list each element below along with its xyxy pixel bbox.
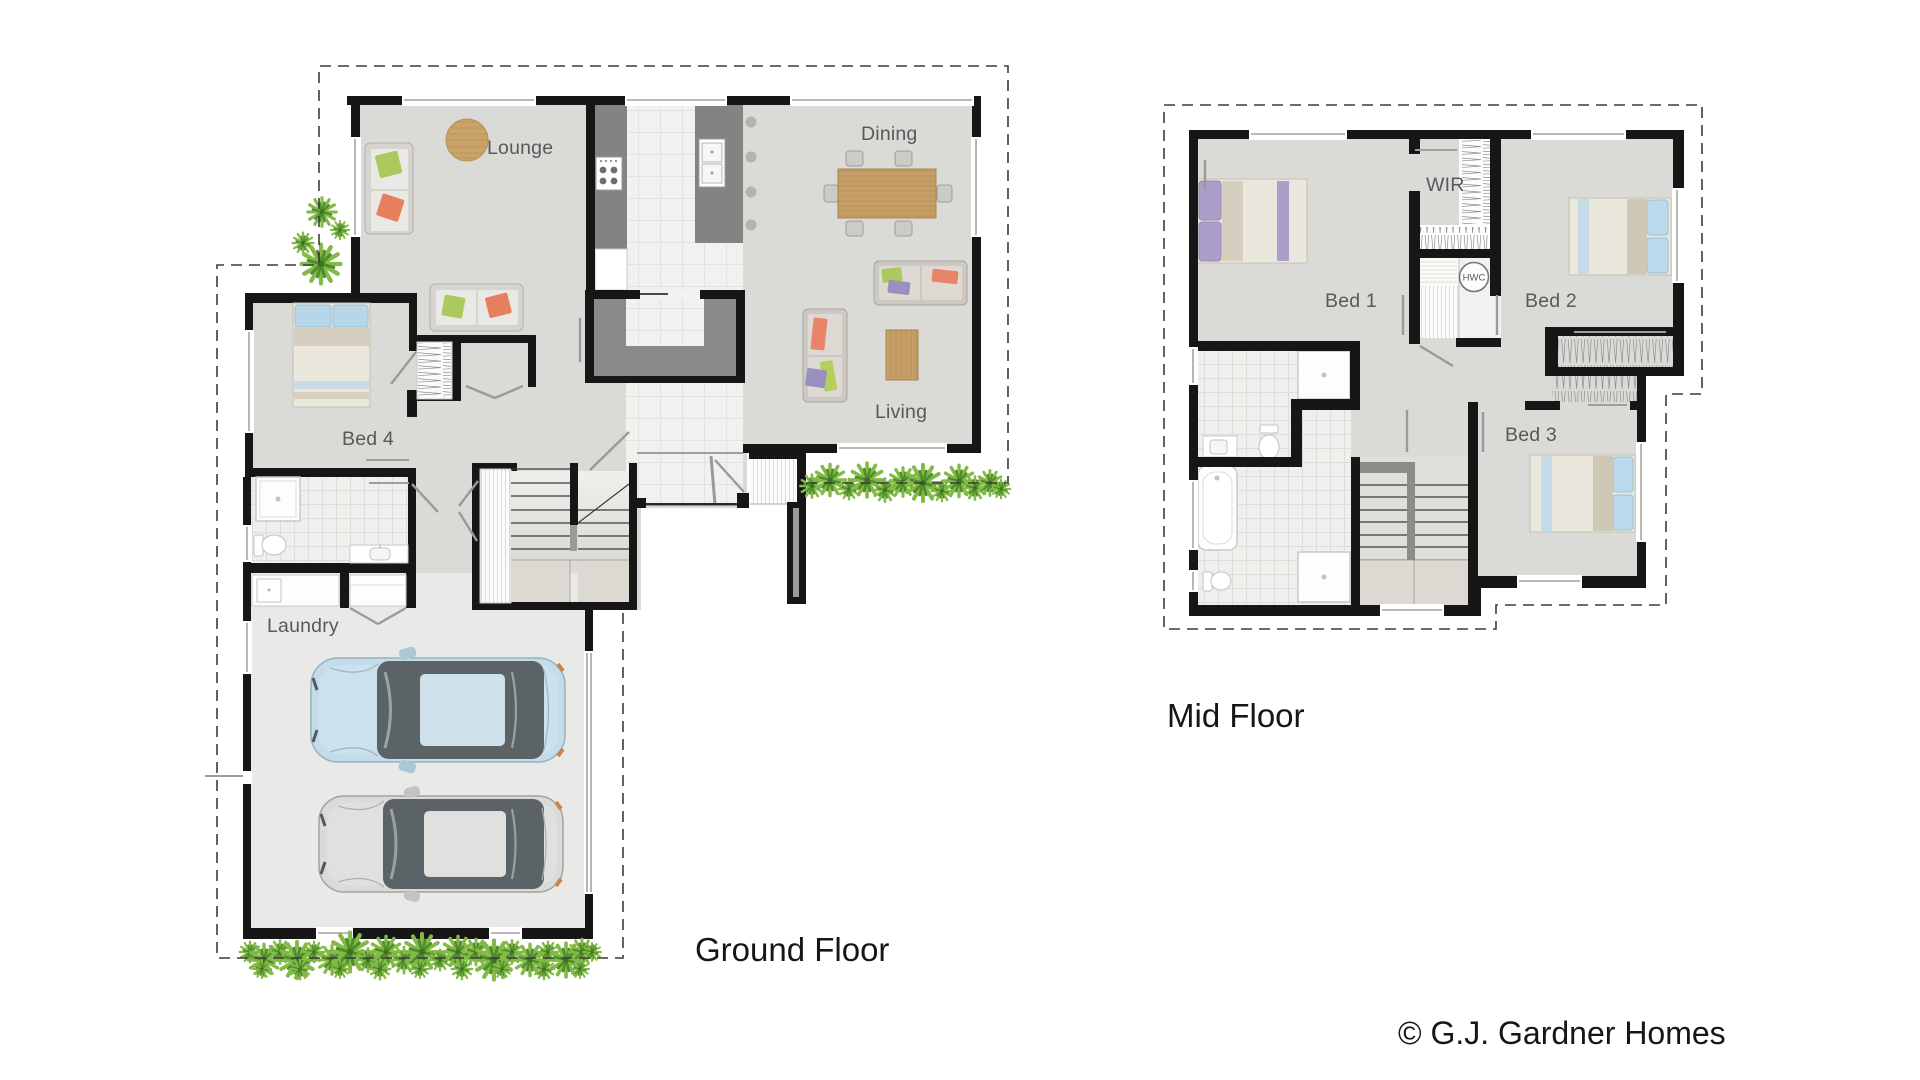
svg-text:Laundry: Laundry bbox=[267, 615, 339, 637]
svg-text:Ground Floor: Ground Floor bbox=[695, 931, 889, 968]
svg-text:Bed 4: Bed 4 bbox=[342, 428, 394, 450]
svg-text:Bed 1: Bed 1 bbox=[1325, 290, 1377, 312]
svg-text:© G.J. Gardner Homes: © G.J. Gardner Homes bbox=[1398, 1015, 1726, 1051]
svg-text:Mid Floor: Mid Floor bbox=[1167, 697, 1305, 734]
svg-text:Bed 2: Bed 2 bbox=[1525, 290, 1577, 312]
svg-text:WIR: WIR bbox=[1426, 174, 1465, 196]
svg-text:Living: Living bbox=[875, 401, 927, 423]
svg-text:HWC: HWC bbox=[1463, 273, 1486, 284]
svg-text:Dining: Dining bbox=[861, 123, 917, 145]
svg-text:Lounge: Lounge bbox=[487, 137, 553, 159]
svg-text:Bed 3: Bed 3 bbox=[1505, 424, 1557, 446]
